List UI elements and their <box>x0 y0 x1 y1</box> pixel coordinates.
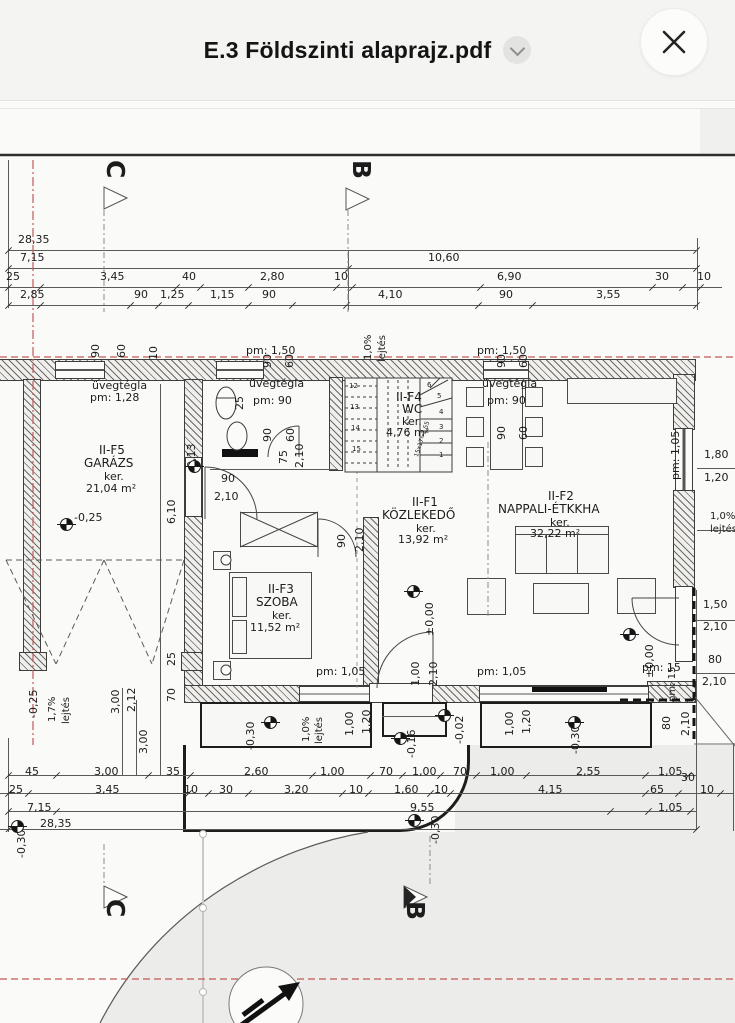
dim-label: 2,80 <box>260 271 285 282</box>
sofa-seat-line <box>577 534 578 574</box>
dim-label: 3,55 <box>596 289 621 300</box>
dim-label: 1,15 <box>210 289 235 300</box>
dim-label: pm: 1,28 <box>90 392 139 403</box>
dim-label: pm: 1,05 <box>316 666 365 677</box>
room-label-nappali: II-F2 <box>548 490 574 502</box>
dim-label: 1,05 <box>658 766 683 777</box>
level-marker <box>394 732 407 745</box>
coffee-table <box>533 583 589 614</box>
dim-label: 25 <box>9 784 23 795</box>
dimension-line <box>696 590 697 830</box>
dim-label: 90 <box>262 289 276 300</box>
dim-label: 1,0% <box>302 717 312 742</box>
sofa-seat-line <box>546 534 547 574</box>
dim-label: pm: 90 <box>487 395 526 406</box>
dim-label: lejtés <box>62 697 72 724</box>
dim-label: 2 <box>439 438 443 445</box>
dim-label: lejtés <box>378 335 388 362</box>
dim-label: 2,10 <box>354 528 365 553</box>
dim-label: 13 <box>350 404 359 411</box>
level-marker <box>188 460 201 473</box>
wall <box>330 378 342 470</box>
room-label-garazs: II-F5 <box>99 444 125 456</box>
dim-label: 3,00 <box>110 690 121 715</box>
dim-label: 1,0% <box>710 512 735 522</box>
dim-label: SZOBA <box>256 596 298 608</box>
dim-label: 1,00 <box>504 712 515 737</box>
dim-label: 1 <box>439 452 443 459</box>
dim-label: 90 <box>336 534 347 548</box>
dim-label: 30 <box>655 271 669 282</box>
wall <box>185 380 202 692</box>
dim-label: 5 <box>437 393 441 400</box>
chair <box>466 387 484 407</box>
dim-label: 2,55 <box>576 766 601 777</box>
dim-label: 10 <box>349 784 363 795</box>
wall <box>364 518 378 696</box>
section-marker-c-bottom: C <box>103 899 128 917</box>
dim-label: 10 <box>434 784 448 795</box>
chair <box>466 447 484 467</box>
dim-label: lejtés <box>710 525 735 535</box>
ground-shading-right <box>455 745 735 832</box>
section-marker-b-top: B <box>349 160 374 179</box>
dim-label: GARÁZS <box>84 457 133 469</box>
dimension-line <box>210 469 338 470</box>
dim-label: 1,80 <box>704 449 729 460</box>
dim-label: 3,45 <box>95 784 120 795</box>
chevron-down-icon <box>510 40 526 56</box>
level-marker <box>264 716 277 729</box>
dim-label: 30 <box>219 784 233 795</box>
dim-label: pm: 1,05 <box>477 666 526 677</box>
dim-label: 7,15 <box>27 802 52 813</box>
dim-label: 13,92 m² <box>398 534 448 545</box>
section-marker-c-top: C <box>103 160 128 178</box>
level-marker <box>408 814 421 827</box>
dim-label: 12 <box>349 383 358 390</box>
dim-label: 80 <box>661 716 672 730</box>
wall <box>24 380 40 668</box>
dimension-line <box>122 688 123 776</box>
dim-label: 45 <box>25 766 39 777</box>
dim-label: 90 <box>90 344 101 358</box>
dim-label: 2,60 <box>244 766 269 777</box>
dim-label: 2,10 <box>294 444 305 469</box>
dim-label: 1,00 <box>412 766 437 777</box>
dim-label: 1,00 <box>320 766 345 777</box>
garage-pier <box>182 653 202 670</box>
dim-label: 60 <box>518 426 529 440</box>
wall <box>0 360 695 380</box>
dim-label: 21,04 m² <box>86 483 136 494</box>
pillow <box>232 620 247 654</box>
dim-label: 3,20 <box>284 784 309 795</box>
radiator <box>222 449 258 457</box>
dim-label: ker. <box>104 471 124 482</box>
level-marker <box>60 518 73 531</box>
dimension-line <box>733 743 734 831</box>
dim-label: 90 <box>134 289 148 300</box>
dim-label: 3,00 <box>94 766 119 777</box>
dim-label: 1,20 <box>361 710 372 735</box>
dim-label: 2,10 <box>214 491 239 502</box>
level-marker <box>438 709 451 722</box>
close-icon <box>659 27 689 57</box>
dim-label: 10 <box>148 346 159 360</box>
dim-label: 4,15 <box>538 784 563 795</box>
glass-brick-window <box>217 362 263 378</box>
dim-label: 1,00 <box>344 712 355 737</box>
dim-label: pm: 1,05 <box>670 431 681 480</box>
nightstand <box>213 661 231 680</box>
dim-label: 70 <box>453 766 467 777</box>
dim-label: 25 <box>234 396 245 410</box>
dim-label: 6 <box>427 382 431 389</box>
dim-label: 90 <box>221 473 235 484</box>
dim-label: -0,30 <box>430 816 441 844</box>
dim-label: 10,60 <box>428 252 460 263</box>
dimension-line <box>8 305 696 306</box>
dim-label: üvegtégla <box>92 380 147 391</box>
dim-label: 7,15 <box>20 252 45 263</box>
dim-label: -0,30 <box>245 722 256 750</box>
title-dropdown-button[interactable] <box>503 36 531 64</box>
dimension-line <box>697 468 735 469</box>
dim-label: 30 <box>681 772 695 783</box>
level-marker <box>11 820 24 833</box>
dim-label: 2,10 <box>702 676 727 687</box>
dim-label: 32,22 m² <box>530 528 580 539</box>
close-button[interactable] <box>640 8 708 76</box>
dim-label: 1,0% <box>364 335 374 360</box>
nightstand <box>213 551 231 570</box>
dim-label: 1,00 <box>490 766 515 777</box>
chair <box>525 387 543 407</box>
pillow <box>232 577 247 617</box>
dim-label: KÖZLEKEDŐ <box>382 509 455 521</box>
dim-label: pm: 1,50 <box>477 345 526 356</box>
dim-label: -0,16 <box>406 730 417 758</box>
dim-label: 70 <box>166 688 177 702</box>
dimension-line <box>695 673 735 674</box>
dim-label: 4,10 <box>378 289 403 300</box>
dim-label: 3,00 <box>138 730 149 755</box>
dim-label: 70 <box>379 766 393 777</box>
dim-label: 6,10 <box>166 500 177 525</box>
wall <box>674 375 694 429</box>
window <box>300 687 370 701</box>
dim-label: -0,25 <box>74 512 102 523</box>
pdf-page: 28,357,1510,60253,45402,80106,9030102,85… <box>0 0 735 1023</box>
chair <box>525 447 543 467</box>
dim-label: 75 <box>278 450 289 464</box>
dim-label: 10 <box>700 784 714 795</box>
dim-label: 28,35 <box>18 234 50 245</box>
dim-label: 1,50 <box>703 599 728 610</box>
dim-label: -0,30 <box>570 726 581 754</box>
wardrobe <box>240 512 318 547</box>
dim-label: 40 <box>182 271 196 282</box>
dim-label: 25 <box>6 271 20 282</box>
dimension-line <box>382 716 443 717</box>
dim-label: NAPPALI-ÉTKKHA <box>498 503 600 515</box>
dim-label: 2,10 <box>703 621 728 632</box>
dim-label: -0,02 <box>454 716 465 744</box>
dim-label: 90 <box>499 289 513 300</box>
level-marker <box>623 628 636 641</box>
door-threshold <box>532 687 607 692</box>
dim-label: 3,45 <box>100 271 125 282</box>
dim-label: pm: 1,50 <box>246 345 295 356</box>
door-opening <box>676 587 692 661</box>
dimension-line <box>8 811 696 812</box>
dim-label: 9,55 <box>410 802 435 813</box>
dim-label: 60 <box>285 428 296 442</box>
boundary-diagonals <box>694 697 735 746</box>
dim-label: 1,20 <box>704 472 729 483</box>
dimension-line <box>8 250 696 251</box>
wall <box>674 491 694 587</box>
dim-label: 1,00 <box>410 662 421 687</box>
page-corner <box>700 108 735 155</box>
dim-label: 80 <box>708 654 722 665</box>
dim-label: 1,7% <box>48 697 58 722</box>
dim-label: pm: 90 <box>253 395 292 406</box>
dim-label: 28,35 <box>40 818 72 829</box>
dim-label: 15 <box>352 446 361 453</box>
garage-pier <box>20 653 46 670</box>
dim-label: 65 <box>650 784 664 795</box>
dim-label: WC <box>402 403 422 415</box>
dim-label: 60 <box>116 344 127 358</box>
armchair <box>467 578 506 615</box>
dim-label: 2,10 <box>680 712 691 737</box>
glass-brick-window <box>56 362 104 378</box>
dim-label: 35 <box>166 766 180 777</box>
screen: 28,357,1510,60253,45402,80106,9030102,85… <box>0 0 735 1023</box>
dim-label: 2,10 <box>428 662 439 687</box>
dim-label: üvegtégla <box>249 378 304 389</box>
level-marker <box>407 585 420 598</box>
entry-door-opening <box>370 684 432 702</box>
dim-label: 14 <box>351 425 360 432</box>
dimension-line <box>0 108 735 109</box>
dim-label: 10 <box>334 271 348 282</box>
dim-label: 90 <box>262 428 273 442</box>
room-label-kozlekedo: II-F1 <box>412 496 438 508</box>
dim-label: üvegtégla <box>482 378 537 389</box>
dimension-line <box>0 829 697 830</box>
dim-label: 3 <box>439 424 443 431</box>
dim-label: -0,30 <box>16 830 27 858</box>
dim-label: 10 <box>697 271 711 282</box>
level-marker <box>568 716 581 729</box>
pdf-title: E.3 Földszinti alaprajz.pdf <box>204 37 492 64</box>
dim-label: 1,20 <box>521 710 532 735</box>
dim-label: 11,52 m² <box>250 622 300 633</box>
pdf-header: E.3 Földszinti alaprajz.pdf <box>0 0 735 101</box>
armchair <box>617 578 656 614</box>
kitchen-counter <box>567 378 677 404</box>
dim-label: lejtés <box>315 717 325 744</box>
dim-label: 25 <box>166 652 177 666</box>
section-marker-b-bottom: B <box>403 901 428 920</box>
dim-label: 1,25 <box>160 289 185 300</box>
dim-label: 1,05 <box>658 802 683 813</box>
dim-label: 1,60 <box>394 784 419 795</box>
ground-shading <box>0 832 735 1023</box>
dimension-line <box>160 384 161 776</box>
dim-label: pm: 15 <box>668 667 678 702</box>
dim-label: 2,85 <box>20 289 45 300</box>
dim-label: 4 <box>439 409 443 416</box>
room-label-szoba: II-F3 <box>268 583 294 595</box>
chair <box>466 417 484 437</box>
dimension-line <box>8 268 696 269</box>
dim-label: ker. <box>272 610 292 621</box>
dim-label: 2,12 <box>126 688 137 713</box>
dim-label: 6,90 <box>497 271 522 282</box>
dim-label: ±0,00 <box>424 602 435 636</box>
dim-label: 10 <box>184 784 198 795</box>
dim-label: -0,25 <box>28 690 39 718</box>
dim-label: 90 <box>496 426 507 440</box>
